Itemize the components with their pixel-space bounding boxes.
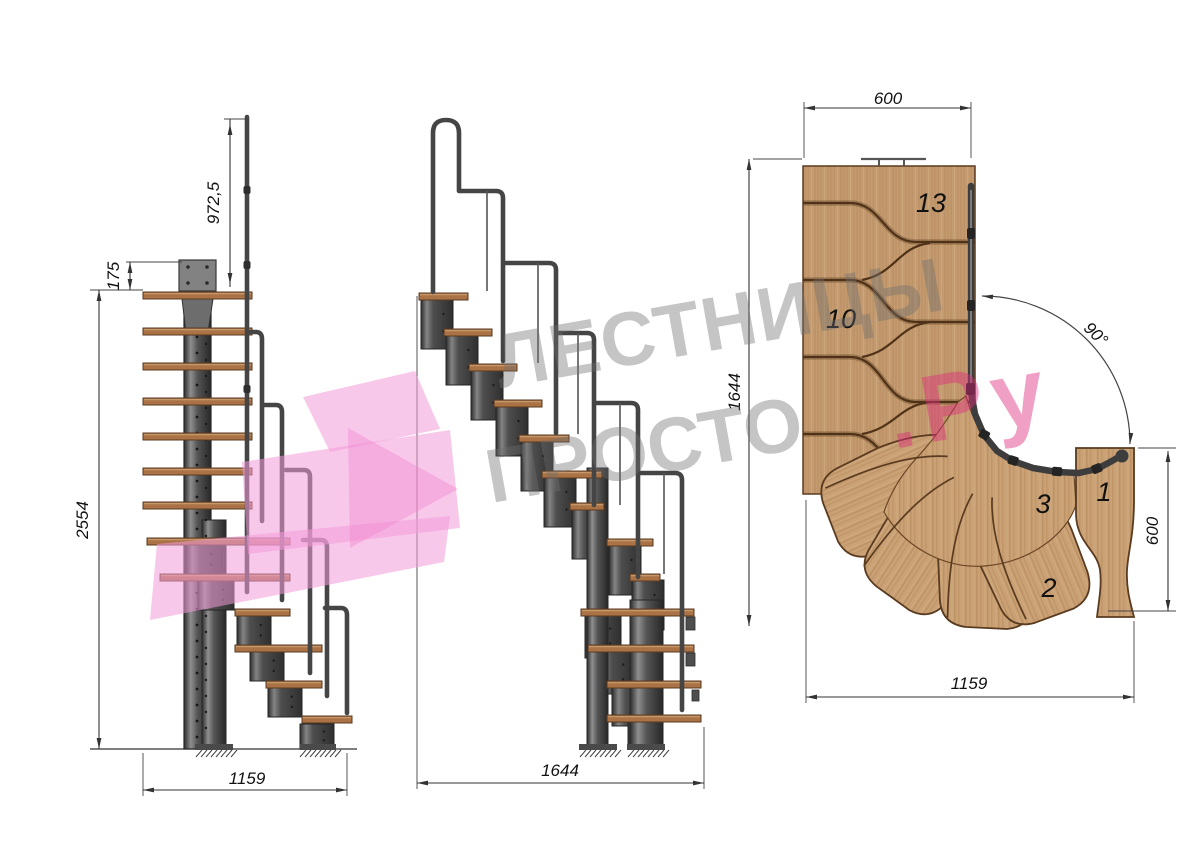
svg-text:2: 2 [1040,573,1056,603]
svg-text:1644: 1644 [541,761,579,780]
svg-text:1159: 1159 [229,769,266,788]
svg-text:1159: 1159 [951,674,988,693]
svg-text:972,5: 972,5 [204,181,223,224]
svg-text:3: 3 [1035,489,1050,519]
svg-text:1: 1 [1096,477,1111,507]
svg-text:600: 600 [1143,516,1162,545]
svg-text:600: 600 [874,89,903,108]
svg-text:2554: 2554 [73,501,92,540]
svg-text:175: 175 [104,261,123,290]
svg-text:13: 13 [916,188,946,218]
